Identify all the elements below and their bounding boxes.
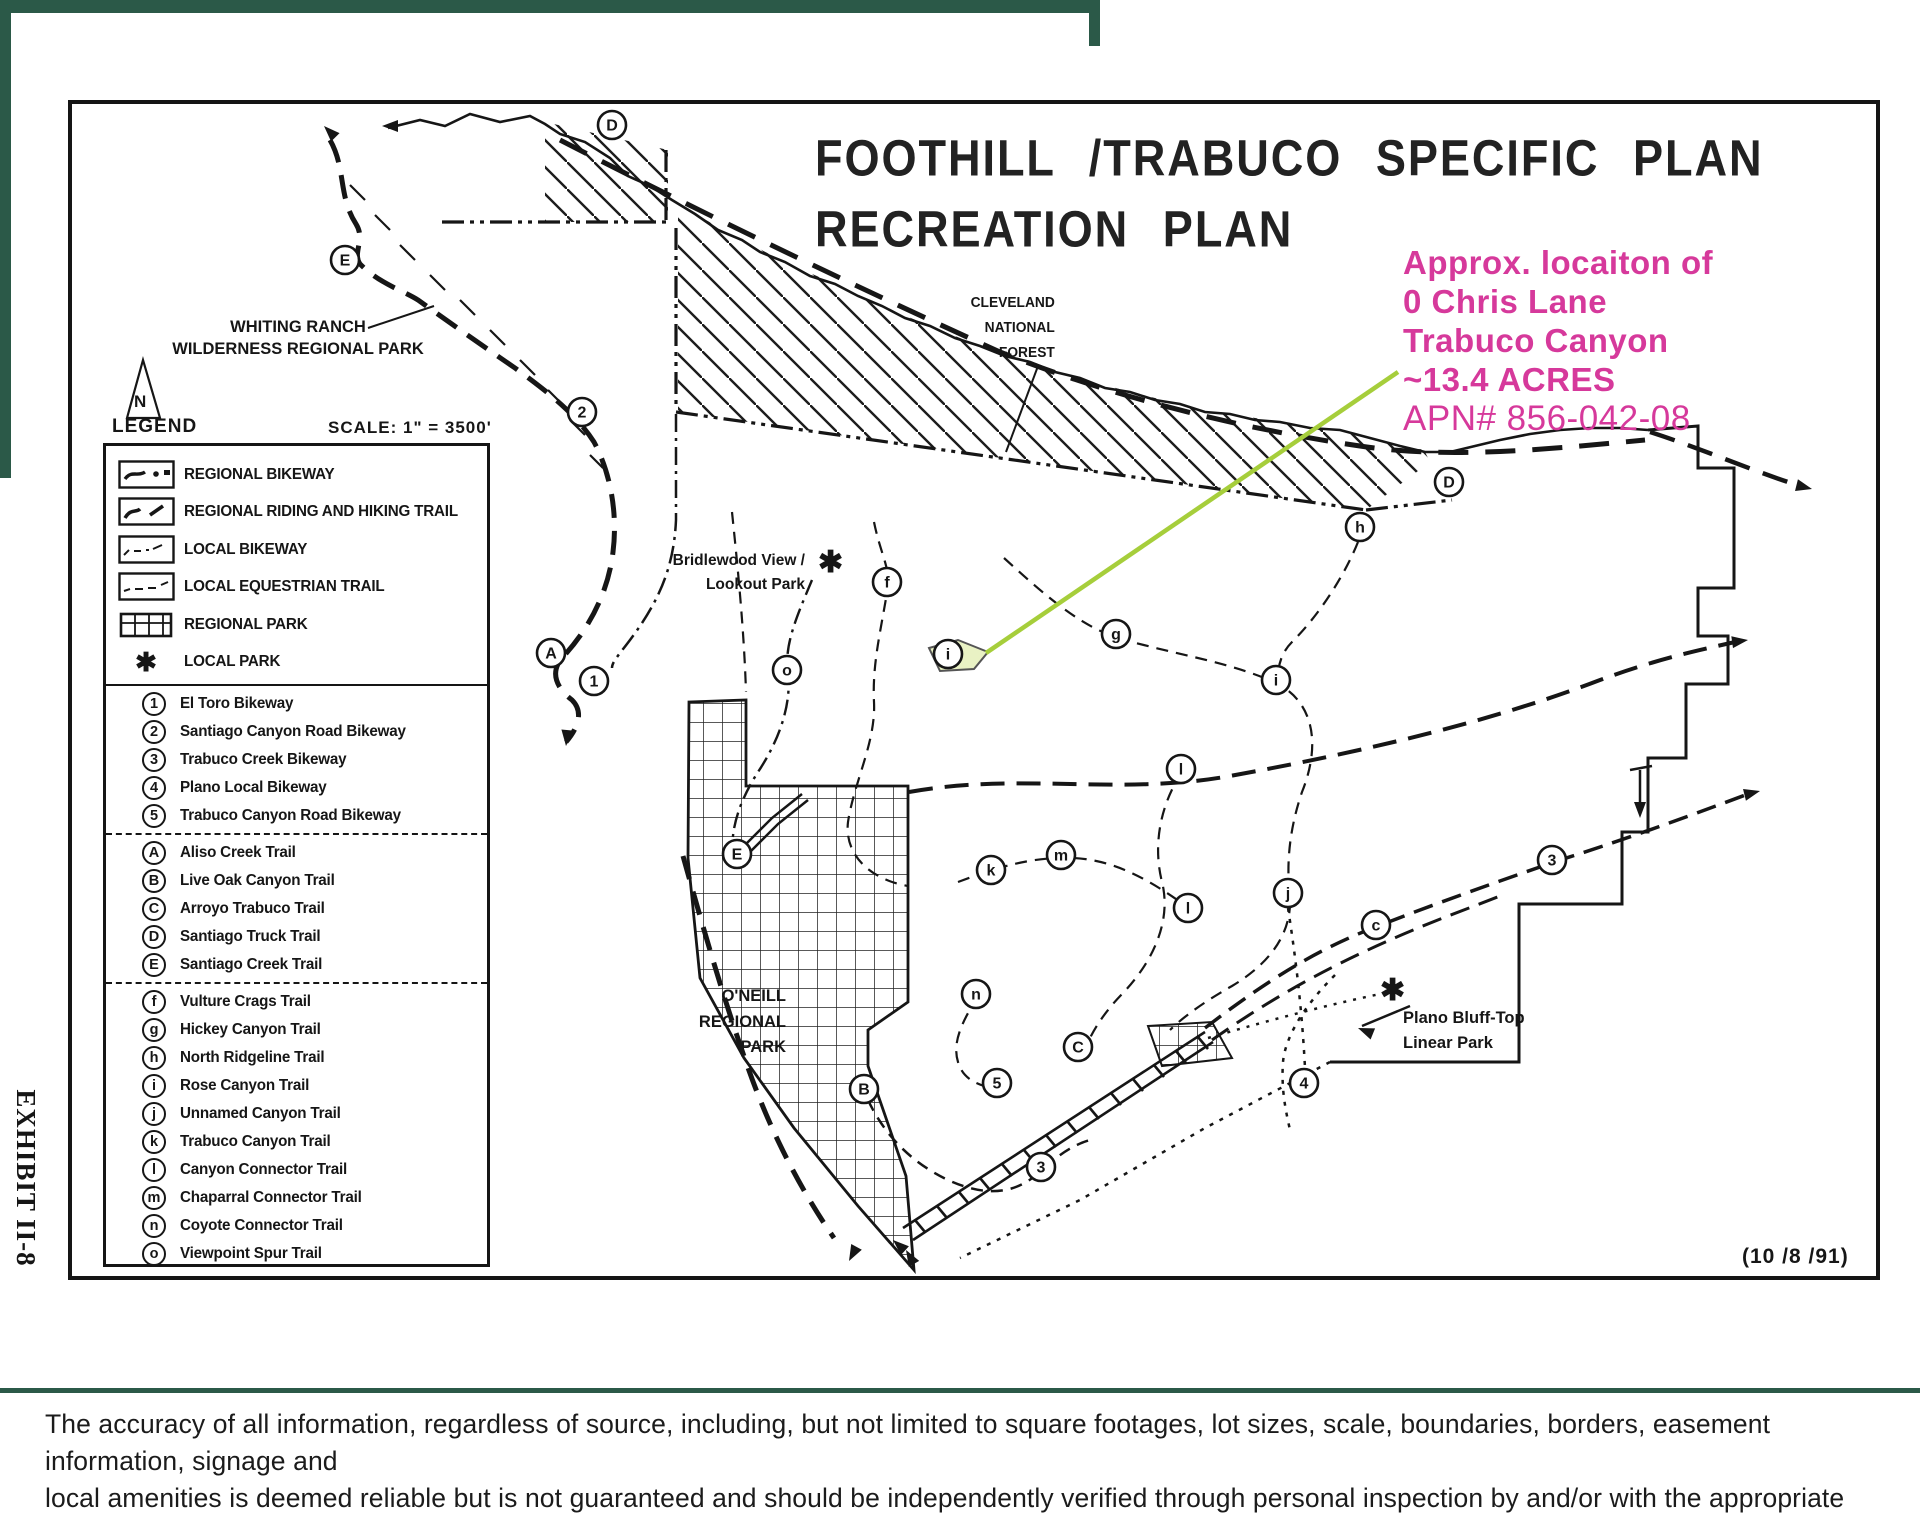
disclaimer-line2: local amenities is deemed reliable but i… [45,1480,1905,1522]
legend-item-regional-trail: BLive Oak Canyon Trail [106,867,487,895]
legend-marker-4: 4 [142,776,166,800]
legend-item-regional-bikeway: REGIONAL BIKEWAY [106,456,487,494]
legend-item-local-trail: nCoyote Connector Trail [106,1212,487,1240]
legend-item-bikeway: 5Trabuco Canyon Road Bikeway [106,802,487,830]
annotation-line1: Approx. locaiton of [1403,243,1823,282]
legend-marker-2: 2 [142,720,166,744]
legend-item-riding-hiking-trail: REGIONAL RIDING AND HIKING TRAIL [106,494,487,532]
svg-text:✱: ✱ [135,647,157,677]
legend-item-bikeway: 2Santiago Canyon Road Bikeway [106,718,487,746]
legend-item-local-trail: hNorth Ridgeline Trail [106,1044,487,1072]
annotation-line4: ~13.4 ACRES [1403,360,1823,399]
legend-item-local-park: ✱LOCAL PARK [106,644,487,682]
legend-marker-l: l [142,1158,166,1182]
legend-marker-h: h [142,1046,166,1070]
exhibit-label: EXHIBIT II-8 [7,1088,41,1268]
legend-item-regional-trail: DSantiago Truck Trail [106,923,487,951]
listing-annotation: Approx. locaiton of 0 Chris Lane Trabuco… [1403,243,1823,438]
page: ✱ ✱ DE2A1EofighDilkmljc3nC5B34 FOOTHILL … [0,0,1920,1522]
legend-item-local-trail: gHickey Canyon Trail [106,1016,487,1044]
legend-item-local-bikeway: LOCAL BIKEWAY [106,531,487,569]
legend-item-bikeway: 4Plano Local Bikeway [106,774,487,802]
local-equestrian-icon [118,572,176,602]
legend-item-local-equestrian: LOCAL EQUESTRIAN TRAIL [106,569,487,607]
legend-box: REGIONAL BIKEWAYREGIONAL RIDING AND HIKI… [103,443,490,1267]
legend-item-regional-park: REGIONAL PARK [106,606,487,644]
regional-park-icon [118,610,176,640]
legend-marker-5: 5 [142,804,166,828]
legend-marker-k: k [142,1130,166,1154]
legend-title: LEGEND [112,416,197,438]
plano-park-label: Plano Bluff-Top Linear Park [1403,1006,1573,1056]
legend-marker-g: g [142,1018,166,1042]
legend-divider [106,833,487,835]
local-park-icon: ✱ [118,647,176,677]
legend-marker-E: E [142,953,166,977]
regional-bikeway-icon [118,460,176,490]
riding-hiking-trail-icon [118,497,176,527]
legend-item-local-trail: mChaparral Connector Trail [106,1184,487,1212]
legend-marker-o: o [142,1242,166,1266]
annotation-line3: Trabuco Canyon [1403,321,1823,360]
green-top-tick [1089,0,1100,46]
green-top-bar [0,0,1100,13]
whiting-ranch-label: WHITING RANCH WILDERNESS REGIONAL PARK [170,316,426,360]
annotation-apn: APN# 856-042-08 [1403,399,1823,438]
green-divider-rule [0,1388,1920,1393]
legend-marker-C: C [142,897,166,921]
legend-marker-D: D [142,925,166,949]
legend-marker-m: m [142,1186,166,1210]
page-title: FOOTHILL /TRABUCO SPECIFIC PLAN [815,128,1708,187]
legend-marker-n: n [142,1214,166,1238]
green-left-bar [0,0,11,478]
legend-marker-3: 3 [142,748,166,772]
legend-item-regional-trail: CArroyo Trabuco Trail [106,895,487,923]
legend-item-local-trail: jUnnamed Canyon Trail [106,1100,487,1128]
annotation-line2: 0 Chris Lane [1403,282,1823,321]
legend-marker-f: f [142,990,166,1014]
oneill-park-label: O'NEILL REGIONAL PARK [640,984,786,1061]
legend-item-local-trail: lCanyon Connector Trail [106,1156,487,1184]
legend-marker-i: i [142,1074,166,1098]
map-date: (10 /8 /91) [1742,1245,1877,1269]
title-block: FOOTHILL /TRABUCO SPECIFIC PLAN RECREATI… [815,128,1745,254]
legend-marker-1: 1 [142,692,166,716]
legend-item-local-trail: oViewpoint Spur Trail [106,1240,487,1268]
cleveland-forest-label: CLEVELAND NATIONAL FOREST [933,291,1055,366]
legend-item-local-trail: fVulture Crags Trail [106,988,487,1016]
legend-marker-j: j [142,1102,166,1126]
legend-marker-B: B [142,869,166,893]
legend-item-local-trail: kTrabuco Canyon Trail [106,1128,487,1156]
legend-divider [106,982,487,984]
disclaimer-text: The accuracy of all information, regardl… [45,1406,1905,1522]
bridlewood-park-label: Bridlewood View / Lookout Park [600,549,805,597]
legend-marker-A: A [142,841,166,865]
scale-label: SCALE: 1" = 3500' [328,418,492,438]
legend-item-regional-trail: ESantiago Creek Trail [106,951,487,979]
disclaimer-line1: The accuracy of all information, regardl… [45,1406,1905,1480]
north-letter: N [134,392,146,412]
legend-item-bikeway: 3Trabuco Creek Bikeway [106,746,487,774]
legend-item-regional-trail: AAliso Creek Trail [106,839,487,867]
local-bikeway-icon [118,535,176,565]
legend-divider [106,684,487,686]
legend-item-local-trail: iRose Canyon Trail [106,1072,487,1100]
legend-item-bikeway: 1El Toro Bikeway [106,690,487,718]
